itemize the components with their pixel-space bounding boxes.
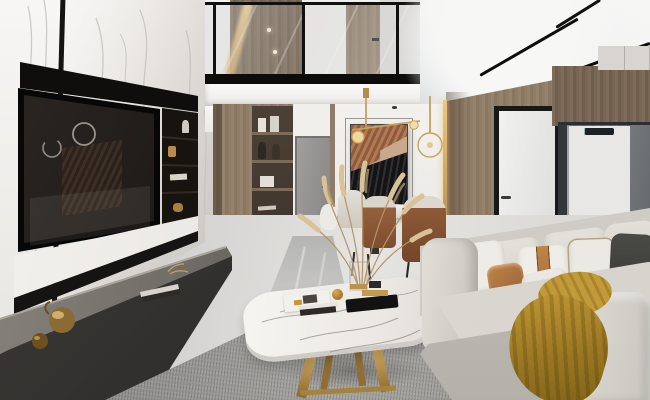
living-room-photo [0,0,650,400]
front-decor [0,0,650,400]
brass-teapot-decor [32,302,75,349]
bench-books [140,264,188,302]
tv-light-rings [43,123,95,157]
